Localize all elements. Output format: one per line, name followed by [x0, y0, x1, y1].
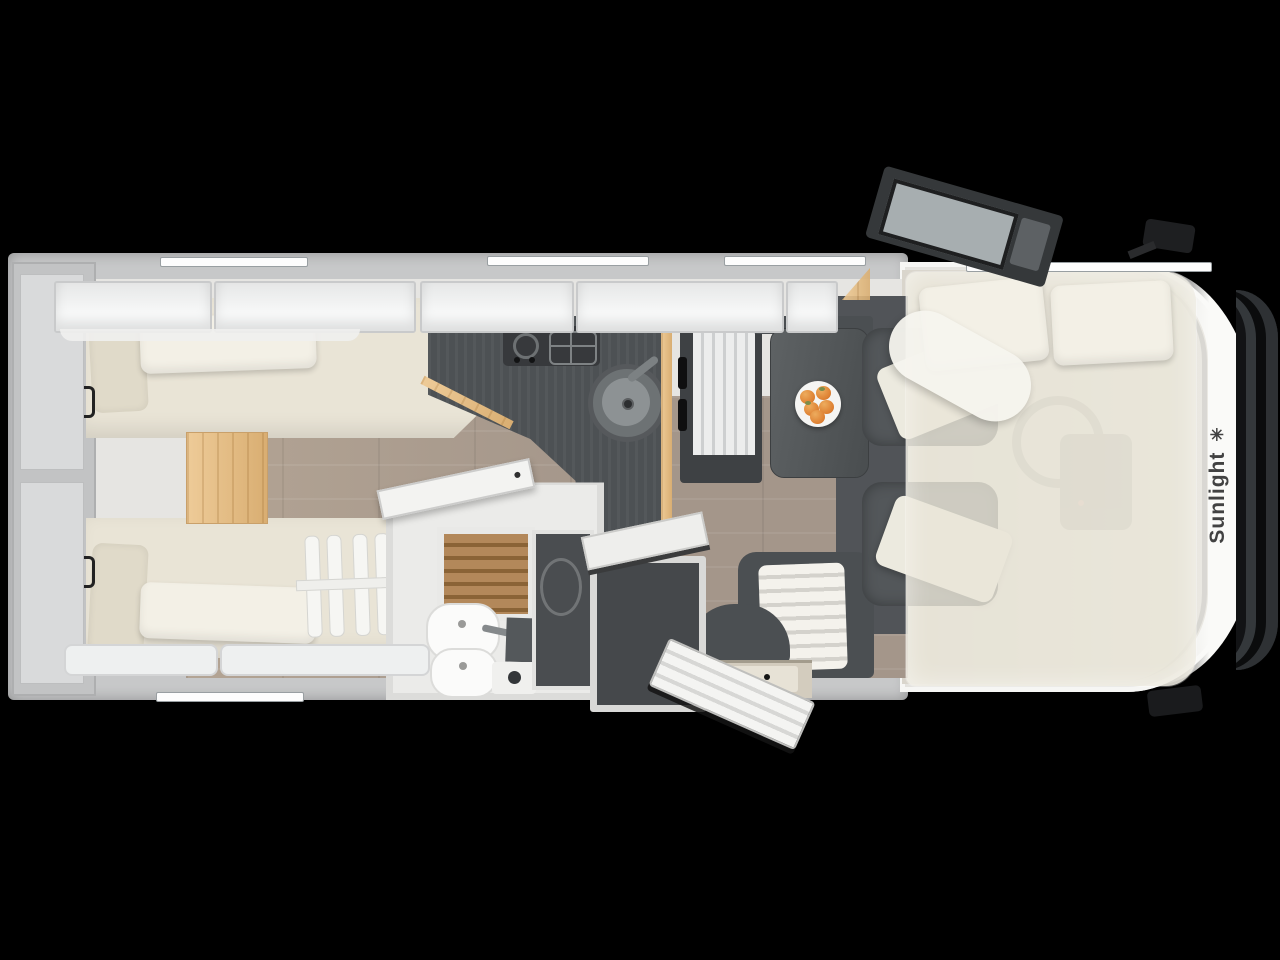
wing-mirror-icon	[1147, 685, 1204, 717]
overhead-cabinet	[786, 281, 838, 333]
cabinet-shelf-lip	[60, 329, 360, 341]
window-strip	[724, 256, 866, 266]
bathroom-step-box	[492, 662, 536, 694]
bottom-locker	[64, 644, 218, 676]
sunlight-logo-text: Sunlight	[1206, 452, 1230, 544]
vent-circle-icon	[508, 671, 521, 684]
sink-drain-icon	[622, 398, 634, 410]
bottom-locker	[220, 644, 430, 676]
basin-drain-icon	[459, 662, 467, 670]
mirror-arm	[1128, 241, 1157, 259]
window-strip	[156, 692, 304, 702]
overhead-cabinet	[214, 281, 416, 333]
overhead-cabinet	[576, 281, 784, 333]
window-strip	[160, 257, 308, 267]
burner-ring-icon	[513, 333, 539, 359]
hob-knob-icon	[514, 357, 520, 363]
overhead-cabinet	[420, 281, 574, 333]
door-handle-icon	[514, 471, 521, 478]
cab-bed-pillow	[1050, 280, 1174, 366]
window-strip	[487, 256, 649, 266]
kitchen-sink	[588, 364, 666, 442]
basin-drain-icon	[458, 620, 466, 628]
sunlight-logo: Sunlight ✳	[1205, 395, 1231, 575]
rear-bed-bottom-pillow	[139, 582, 317, 644]
overhead-cabinet	[54, 281, 212, 333]
fridge-handle-icon	[678, 357, 687, 389]
fruit-plate	[795, 381, 841, 427]
fridge	[680, 325, 762, 483]
floorplan-scene: Sunlight ✳	[0, 0, 1280, 960]
front-grille	[1236, 290, 1278, 670]
bed-handle-icon	[84, 556, 95, 588]
fridge-handle-icon	[678, 399, 687, 431]
fridge-door	[693, 333, 755, 455]
washbasin-reflection	[430, 648, 498, 698]
bed-handle-icon	[84, 386, 95, 418]
sunlight-star-icon: ✳	[1208, 426, 1228, 441]
hob-knob-icon	[529, 357, 535, 363]
hob-grate-icon	[549, 331, 597, 365]
oak-step-cabinet	[186, 432, 268, 524]
